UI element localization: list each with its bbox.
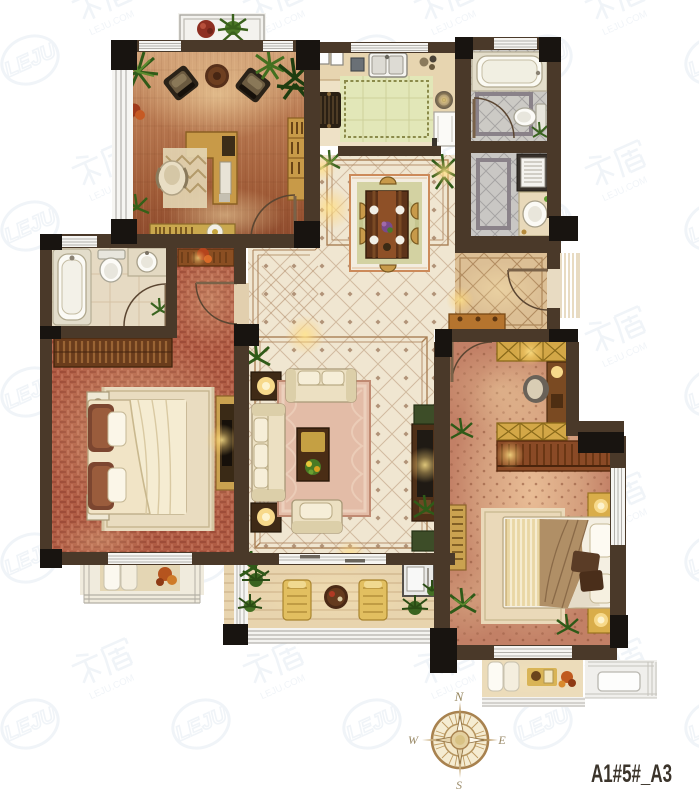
svg-text:A1#5#_A3: A1#5#_A3 — [591, 760, 672, 788]
svg-text:S: S — [456, 778, 462, 792]
svg-text:E: E — [497, 733, 506, 747]
svg-text:N: N — [454, 689, 465, 704]
svg-text:W: W — [408, 733, 419, 747]
